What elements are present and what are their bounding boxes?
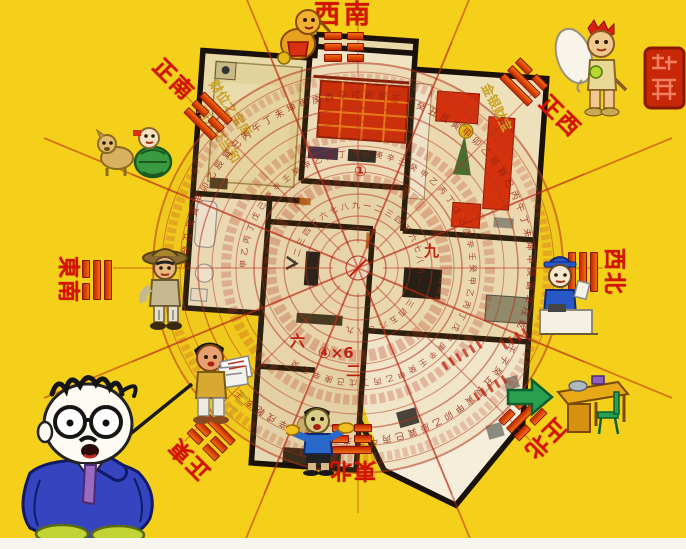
svg-text:六: 六 — [290, 332, 305, 350]
svg-text:①: ① — [354, 162, 367, 180]
straw-hat-figure — [130, 240, 200, 332]
xun-trigram — [82, 260, 112, 300]
direction-label-southeast: 東南 — [56, 256, 112, 304]
papers — [574, 281, 590, 299]
direction-text-southeast: 東南 — [56, 256, 78, 304]
svg-text:九: 九 — [423, 242, 439, 260]
green-right-arrow — [508, 380, 552, 414]
feng-shui-poster: 财位之宝库 南方交当和 金银财宝 — [0, 0, 686, 549]
red-seal-stamp — [643, 46, 686, 110]
svg-text:④×6: ④×6 — [318, 344, 354, 362]
dog-and-turtle-figures — [95, 110, 181, 186]
counter — [540, 310, 592, 334]
clerk-at-counter-figure — [528, 248, 608, 340]
tie — [83, 465, 96, 504]
desk-and-chair — [506, 360, 632, 450]
bottom-white-strip — [0, 538, 686, 549]
boy-with-gold-figure — [286, 404, 354, 476]
sack-carrier-figure — [540, 18, 634, 120]
gold-ingot — [286, 425, 299, 435]
boy-reading-figure — [168, 334, 266, 430]
svg-text:二: 二 — [346, 362, 361, 380]
golden-monkey-figure — [272, 2, 336, 66]
